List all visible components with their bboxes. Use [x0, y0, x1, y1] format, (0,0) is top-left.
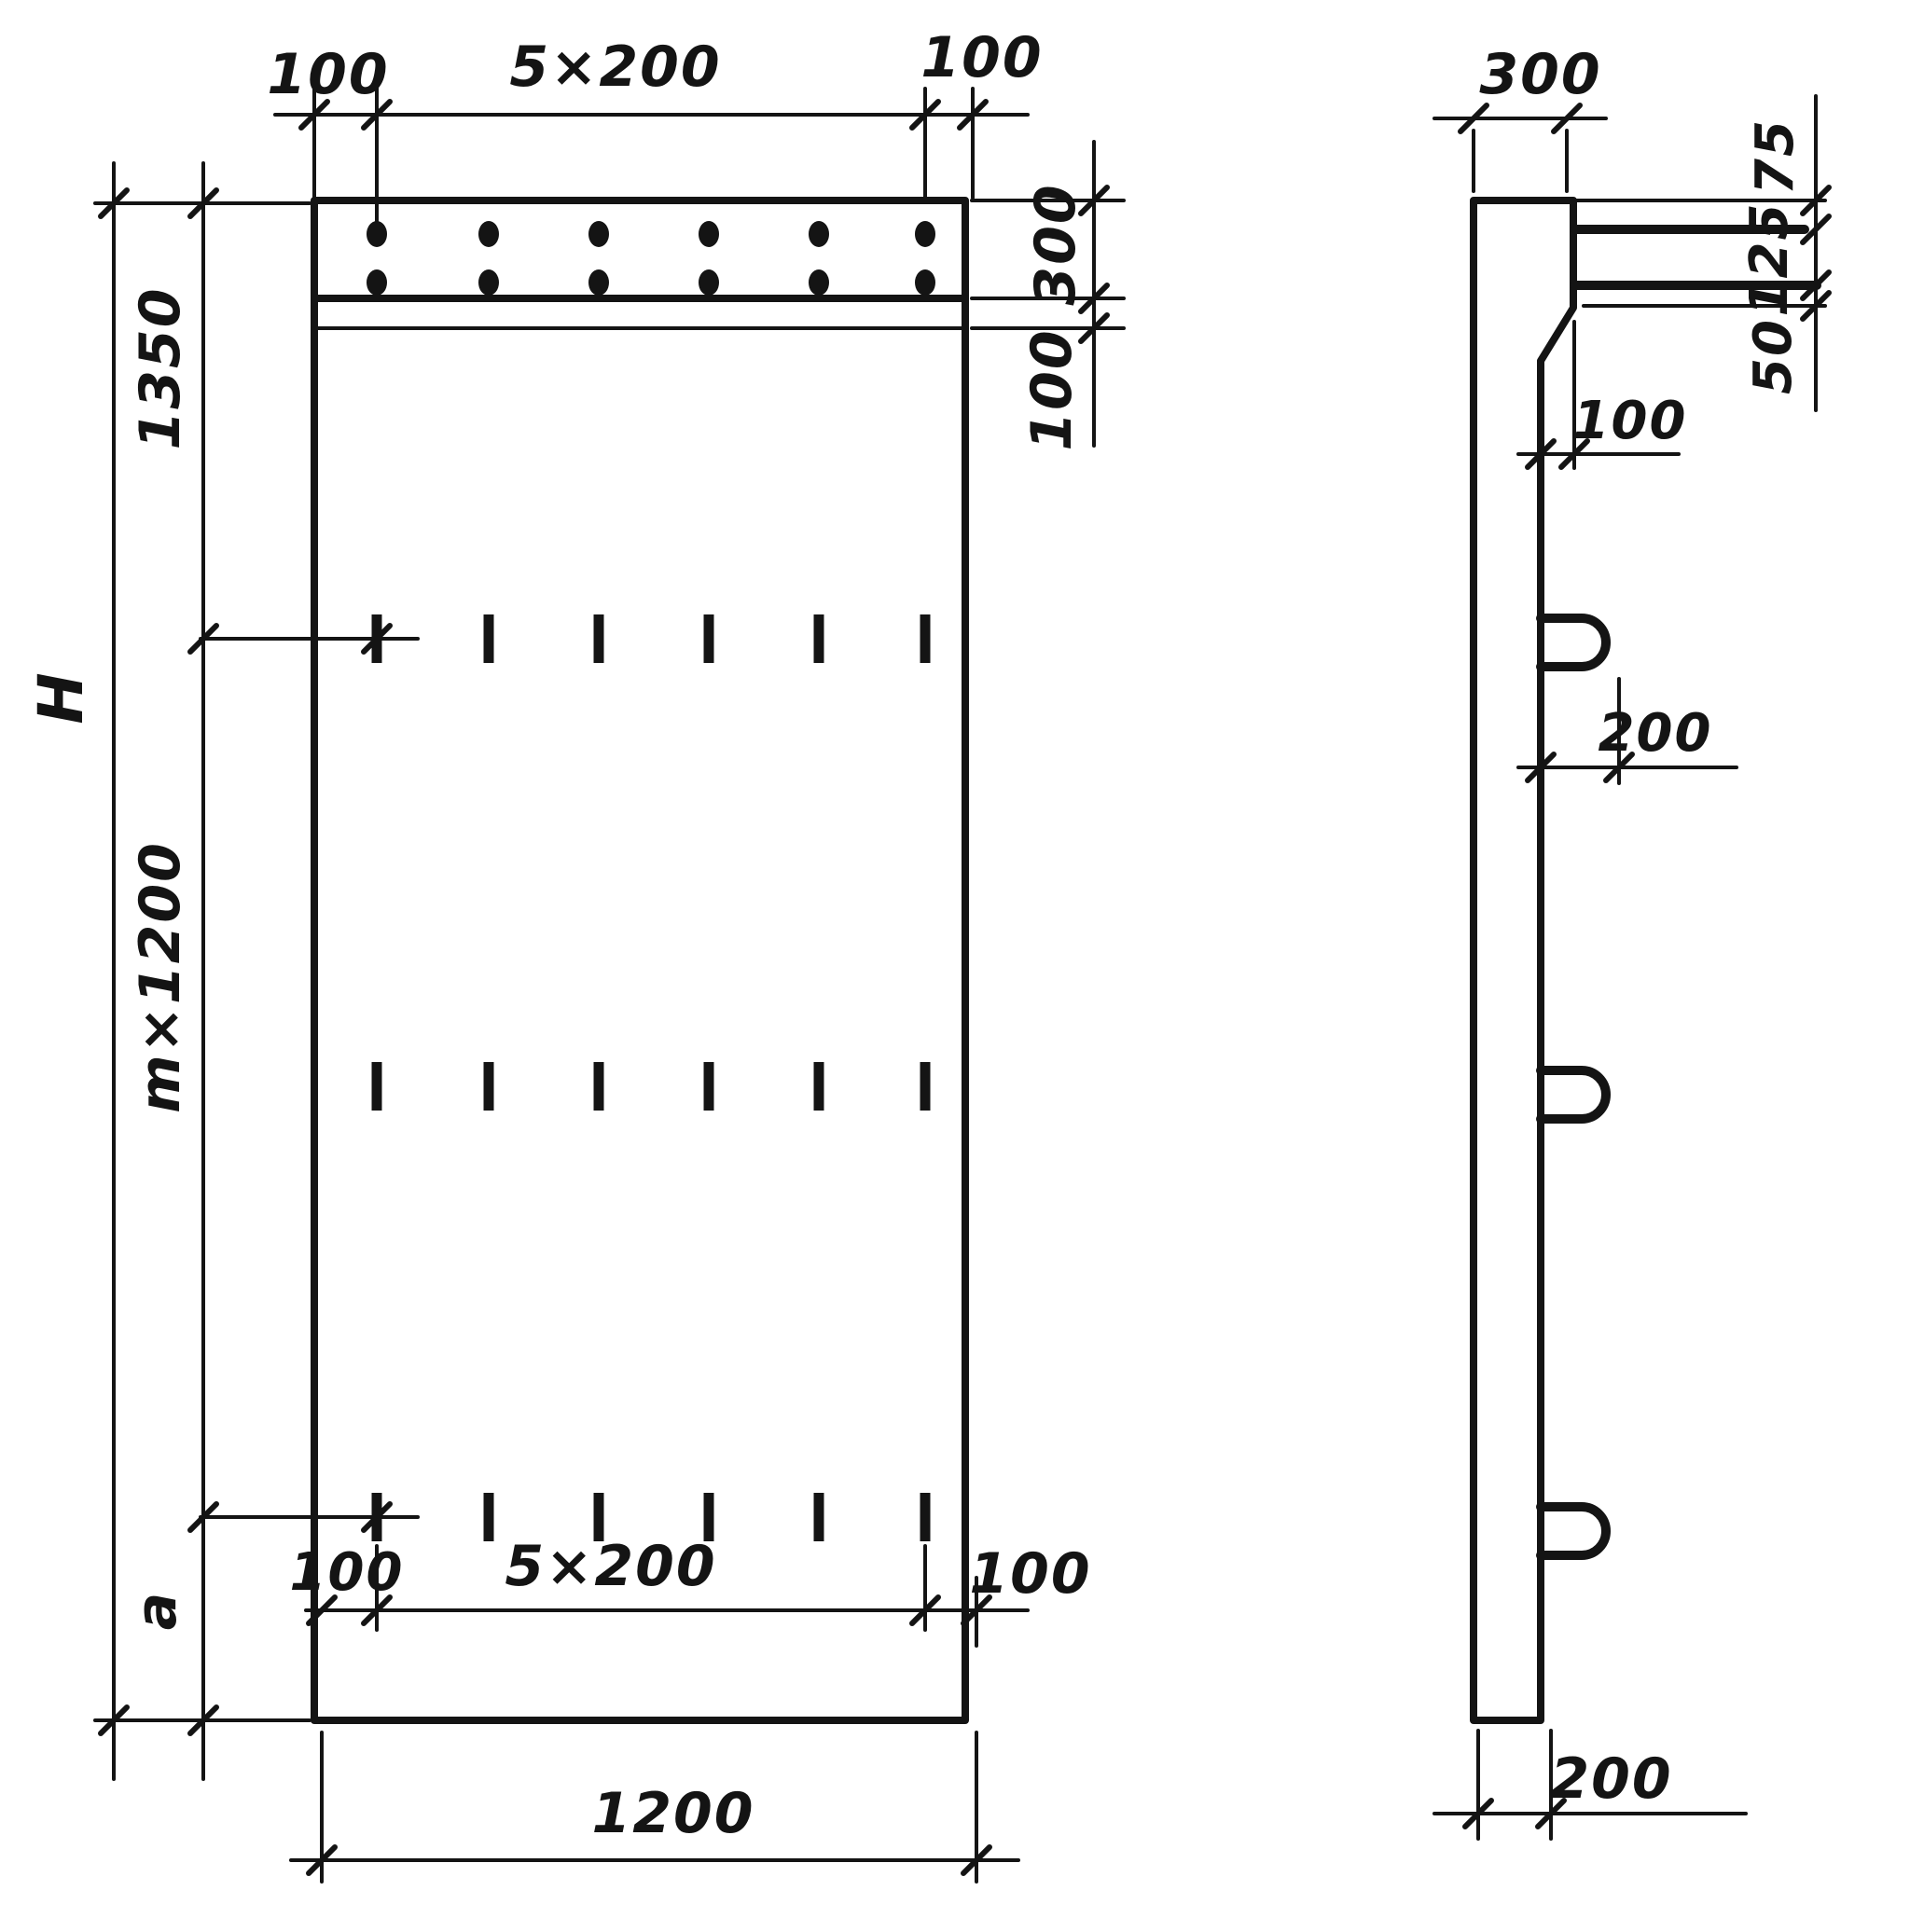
dim-label-bottom-offset: a — [124, 1591, 189, 1631]
front-right-dimension: 300 100 — [972, 142, 1124, 451]
front-view — [201, 200, 965, 1720]
dim-label-bar-spacing: 125 — [1739, 202, 1800, 317]
embed-dot — [588, 269, 609, 296]
embed-dot — [588, 221, 609, 247]
slot — [704, 1062, 714, 1111]
dim-label-top-right-margin: 100 — [920, 25, 1043, 90]
slot — [484, 1493, 494, 1541]
slot — [484, 1062, 494, 1111]
slot — [484, 614, 494, 663]
embed-dot — [699, 221, 719, 247]
dim-label-band-gap: 100 — [1019, 328, 1085, 450]
slot — [704, 614, 714, 663]
lifting-loop — [1541, 1070, 1606, 1119]
panel-outline — [314, 200, 965, 1720]
front-width-dimension: 1200 — [291, 1732, 1018, 1882]
dim-label-top-spacing: 5×200 — [509, 34, 721, 100]
dim-label-top-thickness: 300 — [1479, 42, 1601, 107]
panel-drawing: 100 5×200 100 300 100 1350 H m×1200 a — [0, 0, 1910, 1932]
dim-label-bottom-left-margin: 100 — [290, 1542, 405, 1603]
lifting-loop — [1541, 618, 1606, 667]
dim-label-bar1-offset: 75 — [1745, 118, 1806, 195]
embed-dot — [809, 221, 829, 247]
embed-dot — [915, 221, 935, 247]
dim-label-step: 100 — [1573, 391, 1688, 451]
front-left-dimensions: 1350 H m×1200 a — [25, 163, 310, 1779]
dim-label-top-to-first-row: 1350 — [128, 287, 193, 450]
slot — [814, 614, 824, 663]
dim-label-bottom-spacing: 5×200 — [505, 1534, 716, 1599]
dim-label-module-height: m×1200 — [128, 841, 193, 1113]
side-top-dimension: 300 — [1434, 42, 1606, 191]
side-bottom-dimension: 200 — [1434, 1731, 1746, 1839]
slot — [372, 1062, 382, 1111]
dim-label-overall-height: H — [25, 670, 97, 724]
slot — [594, 1062, 604, 1111]
slot — [814, 1062, 824, 1111]
embed-dot — [809, 269, 829, 296]
dim-label-top-left-margin: 100 — [267, 42, 389, 107]
dim-label-bottom-right-margin: 100 — [969, 1541, 1091, 1607]
slot — [920, 614, 931, 663]
slot — [594, 614, 604, 663]
embed-dot — [367, 269, 387, 296]
dim-label-width: 1200 — [592, 1781, 755, 1846]
slot — [920, 1062, 931, 1111]
side-right-dimension: 75 125 50 — [1739, 96, 1829, 410]
dim-label-band-height: 300 — [1023, 183, 1088, 305]
drawing-page: 100 5×200 100 300 100 1350 H m×1200 a — [0, 0, 1910, 1932]
dim-label-loop-length: 200 — [1599, 703, 1713, 764]
side-panel-outline — [1474, 200, 1573, 1720]
slot — [920, 1493, 931, 1541]
slot — [814, 1493, 824, 1541]
embed-dot — [915, 269, 935, 296]
embed-dot — [478, 269, 499, 296]
dim-label-bar2-to-edge: 50 — [1743, 318, 1804, 394]
dim-label-bottom-thickness: 200 — [1550, 1746, 1672, 1812]
side-loop-dimension: 200 — [1518, 679, 1737, 783]
embed-dot — [478, 221, 499, 247]
lifting-loop — [1541, 1507, 1606, 1555]
embed-dot — [699, 269, 719, 296]
